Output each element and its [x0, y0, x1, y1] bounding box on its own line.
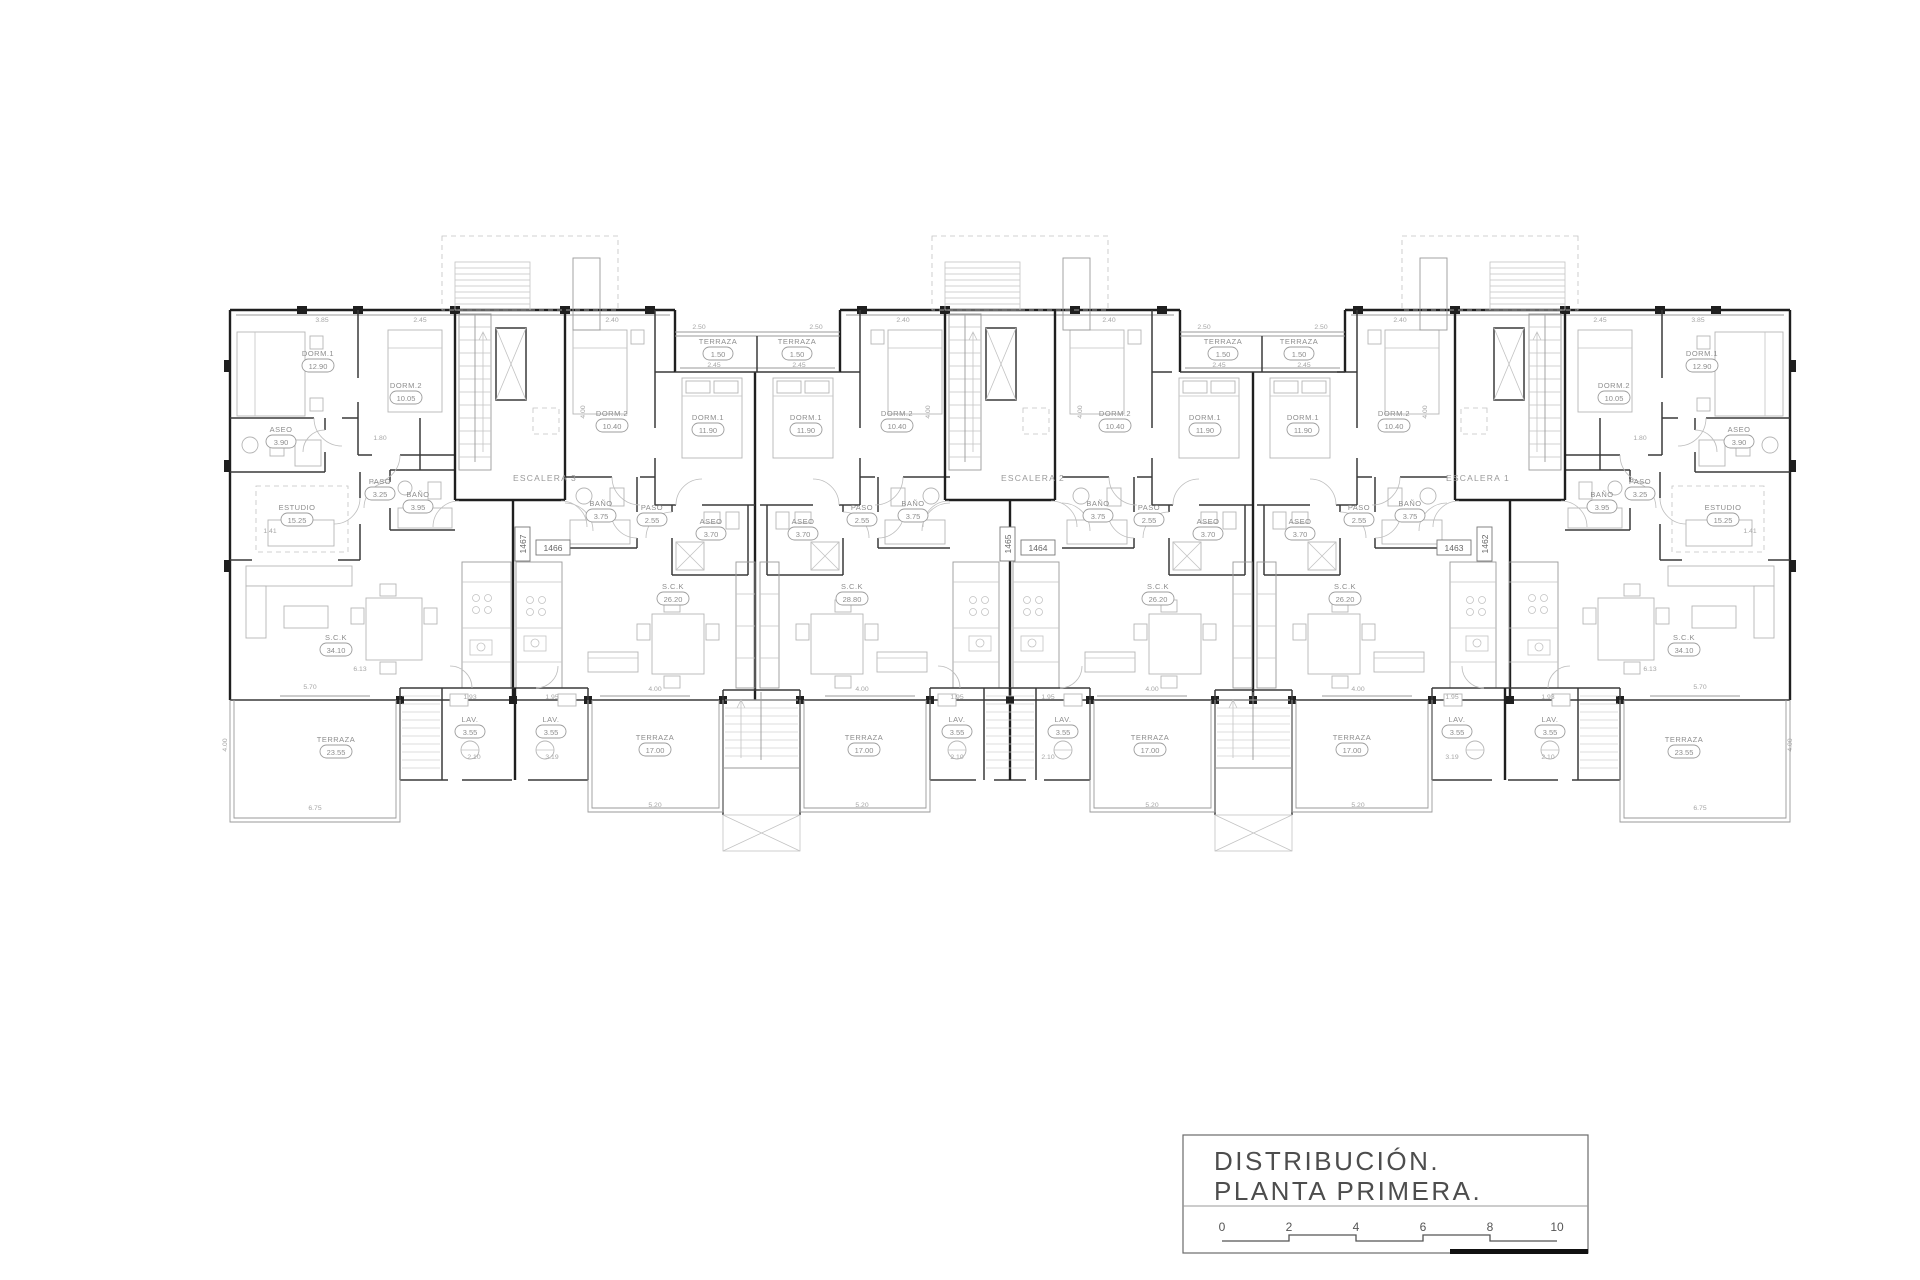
unit-tag-1465: 1465	[1000, 527, 1015, 561]
room-label-apt5-terraza: TERRAZA17.00	[1333, 733, 1372, 756]
room-label-apt5-sck: S.C.K26.20	[1329, 582, 1361, 605]
room-name-label: ASEO	[792, 517, 815, 526]
unit-tags: 1466 1464 1463 1467 1465 1462	[515, 527, 1492, 561]
room-label-apt3-dorm2: DORM.210.40	[881, 409, 913, 432]
dimension-text: 1.80	[1633, 435, 1646, 442]
room-area-value: 2.55	[1142, 516, 1157, 525]
room-name-label: BAÑO	[589, 499, 612, 508]
unit-tag-text: 1464	[1029, 543, 1048, 553]
room-name-label: DORM.1	[1287, 413, 1319, 422]
room-area-value: 3.70	[1293, 530, 1308, 539]
room-area-value: 28.80	[843, 595, 862, 604]
room-area-value: 2.55	[855, 516, 870, 525]
dimension-text: 1.93	[1541, 694, 1554, 701]
room-name-label: DORM.2	[1099, 409, 1131, 418]
room-label-apt5-paso: PASO2.55	[1344, 503, 1374, 526]
dimension-text: 6.75	[1693, 805, 1706, 812]
room-name-label: DORM.1	[790, 413, 822, 422]
dimension-text: 3.19	[1445, 754, 1458, 761]
room-name-label: LAV.	[1541, 715, 1558, 724]
dimension-text: 2.10	[467, 754, 480, 761]
room-area-value: 26.20	[1336, 595, 1355, 604]
room-label-apt6-dorm1: DORM.112.90	[1686, 349, 1718, 372]
room-label-apt2-dorm1: DORM.111.90	[692, 413, 724, 436]
room-area-value: 1.50	[1216, 350, 1231, 359]
dimension-text: 2.40	[896, 317, 909, 324]
room-label-apt2-lav: LAV.3.55	[536, 715, 566, 738]
scale-bar: 0 2 4 6 8 10	[1219, 1220, 1564, 1241]
room-label-apt5-terraza-sup: TERRAZA1.50	[1280, 337, 1319, 360]
unit-tag-1462: 1462	[1477, 527, 1492, 561]
room-label-apt1-bano: BAÑO3.95	[403, 490, 433, 513]
dimension-text: 2.45	[413, 317, 426, 324]
stair-label-escalera-1: ESCALERA 1	[1446, 473, 1510, 483]
room-area-value: 3.95	[411, 503, 426, 512]
dimension-text: 1.41	[263, 528, 276, 535]
dimension-text: 6.13	[1643, 666, 1656, 673]
apartment-1	[230, 310, 511, 696]
room-area-value: 15.25	[1714, 516, 1733, 525]
dimension-text: 2.50	[1314, 324, 1327, 331]
dimension-text: 6.13	[353, 666, 366, 673]
room-name-label: LAV.	[948, 715, 965, 724]
room-label-apt4-dorm2: DORM.210.40	[1099, 409, 1131, 432]
room-area-value: 3.75	[1091, 512, 1106, 521]
room-area-value: 10.40	[603, 422, 622, 431]
dimension-text: 1.80	[373, 435, 386, 442]
dimension-text: 2.40	[605, 317, 618, 324]
room-label-apt2-bano: BAÑO3.75	[586, 499, 616, 522]
room-name-label: BAÑO	[1086, 499, 1109, 508]
room-label-apt1-dorm1: DORM.112.90	[302, 349, 334, 372]
room-area-value: 10.40	[1385, 422, 1404, 431]
room-label-apt5-dorm1: DORM.111.90	[1287, 413, 1319, 436]
dimension-text: 2.10	[1041, 754, 1054, 761]
unit-tag-1464: 1464	[1021, 540, 1055, 555]
dimension-text: 2.45	[1593, 317, 1606, 324]
room-area-value: 23.55	[1675, 748, 1694, 757]
room-label-apt6-lav: LAV.3.55	[1535, 715, 1565, 738]
stair-label-escalera-2: ESCALERA 2	[1001, 473, 1065, 483]
room-area-value: 10.40	[888, 422, 907, 431]
dimension-text: 4.00	[925, 405, 932, 418]
room-label-apt5-dorm2: DORM.210.40	[1378, 409, 1410, 432]
dimension-text: 6.75	[308, 805, 321, 812]
title-block-accent-bar	[1450, 1249, 1588, 1254]
dimension-text: 4.00	[1351, 686, 1364, 693]
room-label-apt3-dorm1: DORM.111.90	[790, 413, 822, 436]
room-area-value: 11.90	[699, 426, 717, 435]
unit-tag-text: 1463	[1445, 543, 1464, 553]
dimension-text: 2.10	[1541, 754, 1554, 761]
room-area-value: 3.55	[1450, 728, 1465, 737]
unit-tag-text: 1467	[518, 534, 528, 553]
room-area-value: 17.00	[646, 746, 665, 755]
room-label-apt4-sck: S.C.K26.20	[1142, 582, 1174, 605]
room-name-label: ASEO	[700, 517, 723, 526]
room-label-apt6-paso: PASO3.25	[1625, 477, 1655, 500]
room-name-label: TERRAZA	[1131, 733, 1170, 742]
room-label-apt5-lav: LAV.3.55	[1442, 715, 1472, 738]
room-name-label: ASEO	[1728, 425, 1751, 434]
room-label-apt4-bano: BAÑO3.75	[1083, 499, 1113, 522]
room-area-value: 26.20	[664, 595, 683, 604]
room-name-label: DORM.2	[881, 409, 913, 418]
room-area-value: 3.25	[1633, 490, 1648, 499]
dimension-text: 2.45	[792, 362, 805, 369]
room-area-value: 15.25	[288, 516, 307, 525]
dimension-text: 2.45	[707, 362, 720, 369]
room-area-value: 3.75	[594, 512, 609, 521]
room-name-label: BAÑO	[901, 499, 924, 508]
dimension-text: 5.20	[855, 802, 868, 809]
room-label-apt1-estudio: ESTUDIO15.25	[279, 503, 316, 526]
dimension-text: 3.85	[315, 317, 328, 324]
room-name-label: TERRAZA	[699, 337, 738, 346]
room-label-apt3-lav: LAV.3.55	[942, 715, 972, 738]
room-name-label: LAV.	[461, 715, 478, 724]
unit-tag-1463: 1463	[1437, 540, 1471, 555]
room-label-apt3-aseo: ASEO3.70	[788, 517, 818, 540]
room-label-apt6-estudio: ESTUDIO15.25	[1705, 503, 1742, 526]
room-area-value: 3.90	[1732, 438, 1747, 447]
room-label-apt6-dorm2: DORM.210.05	[1598, 381, 1630, 404]
room-area-value: 3.55	[1056, 728, 1071, 737]
room-label-apt1-sck: S.C.K34.10	[320, 633, 352, 656]
room-label-apt1-paso: PASO3.25	[365, 477, 395, 500]
room-area-value: 3.25	[373, 490, 388, 499]
room-label-apt1-dorm2: DORM.210.05	[390, 381, 422, 404]
room-area-value: 11.90	[1294, 426, 1312, 435]
dimension-text: 4.00	[648, 686, 661, 693]
room-name-label: S.C.K	[1673, 633, 1695, 642]
room-name-label: PASO	[1629, 477, 1651, 486]
room-area-value: 12.90	[309, 362, 328, 371]
room-name-label: TERRAZA	[845, 733, 884, 742]
room-area-value: 10.40	[1106, 422, 1125, 431]
dimension-text: 2.40	[1393, 317, 1406, 324]
dimension-text: 2.50	[692, 324, 705, 331]
dimension-text: 2.10	[950, 754, 963, 761]
scale-tick-label: 4	[1353, 1220, 1360, 1234]
dimension-text: 2.45	[1297, 362, 1310, 369]
laundry-module-left	[400, 666, 588, 780]
room-name-label: TERRAZA	[1204, 337, 1243, 346]
stair-labels: ESCALERA 3 ESCALERA 2 ESCALERA 1	[513, 473, 1510, 483]
room-name-label: DORM.1	[692, 413, 724, 422]
room-name-label: PASO	[1348, 503, 1370, 512]
room-label-apt5-aseo: ASEO3.70	[1285, 517, 1315, 540]
dimension-text: 5.70	[303, 684, 316, 691]
room-area-value: 17.00	[855, 746, 874, 755]
room-name-label: PASO	[641, 503, 663, 512]
room-area-value: 3.55	[1543, 728, 1558, 737]
dimension-text: 2.50	[1197, 324, 1210, 331]
room-label-apt4-aseo: ASEO3.70	[1193, 517, 1223, 540]
dimension-text: 5.20	[1351, 802, 1364, 809]
dimension-text: 1.95	[950, 694, 963, 701]
room-name-label: S.C.K	[1334, 582, 1356, 591]
room-area-value: 10.05	[397, 394, 416, 403]
dimension-text: 5.20	[648, 802, 661, 809]
scale-tick-label: 8	[1487, 1220, 1494, 1234]
room-area-value: 1.50	[711, 350, 726, 359]
drawing-title-line1: DISTRIBUCIÓN.	[1214, 1146, 1440, 1176]
room-label-apt3-sck: S.C.K28.80	[836, 582, 868, 605]
dimension-text: 2.45	[1212, 362, 1225, 369]
room-name-label: TERRAZA	[1280, 337, 1319, 346]
dimension-text: 4.00	[1145, 686, 1158, 693]
room-label-apt4-terraza-sup: TERRAZA1.50	[1204, 337, 1243, 360]
room-area-value: 3.55	[950, 728, 965, 737]
room-name-label: DORM.2	[596, 409, 628, 418]
room-label-apt6-sck: S.C.K34.10	[1668, 633, 1700, 656]
room-label-apt4-terraza: TERRAZA17.00	[1131, 733, 1170, 756]
room-area-value: 2.55	[645, 516, 660, 525]
room-name-label: ESTUDIO	[279, 503, 316, 512]
dimension-text: 5.70	[1693, 684, 1706, 691]
room-area-value: 12.90	[1693, 362, 1712, 371]
dimension-text: 1.93	[463, 694, 476, 701]
room-name-label: TERRAZA	[1665, 735, 1704, 744]
room-name-label: TERRAZA	[636, 733, 675, 742]
dimension-text: 2.40	[1102, 317, 1115, 324]
room-name-label: S.C.K	[325, 633, 347, 642]
room-label-apt2-paso: PASO2.55	[637, 503, 667, 526]
scale-tick-label: 10	[1550, 1220, 1564, 1234]
room-area-value: 3.75	[906, 512, 921, 521]
room-label-apt6-bano: BAÑO3.95	[1587, 490, 1617, 513]
room-label-apt4-paso: PASO2.55	[1134, 503, 1164, 526]
room-area-value: 1.50	[790, 350, 805, 359]
room-name-label: DORM.2	[1598, 381, 1630, 390]
room-area-value: 23.55	[327, 748, 346, 757]
room-label-apt5-bano: BAÑO3.75	[1395, 499, 1425, 522]
scale-tick-label: 0	[1219, 1220, 1226, 1234]
scale-bar-line	[1222, 1235, 1557, 1241]
room-name-label: S.C.K	[1147, 582, 1169, 591]
room-area-value: 2.55	[1352, 516, 1367, 525]
room-label-apt2-sck: S.C.K26.20	[657, 582, 689, 605]
room-name-label: PASO	[851, 503, 873, 512]
room-area-value: 11.90	[797, 426, 815, 435]
room-area-value: 3.70	[704, 530, 719, 539]
dimension-text: 5.20	[1145, 802, 1158, 809]
dimension-text: 1.41	[1743, 528, 1756, 535]
room-area-value: 17.00	[1141, 746, 1160, 755]
architectural-sheet: DORM.112.90 DORM.210.05 ASEO3.90 PASO3.2…	[0, 0, 1920, 1280]
title-block: DISTRIBUCIÓN. PLANTA PRIMERA. 0 2 4 6 8 …	[1183, 1135, 1588, 1254]
dimension-text: 4.00	[1787, 738, 1794, 751]
room-name-label: ASEO	[270, 425, 293, 434]
room-name-label: DORM.2	[390, 381, 422, 390]
room-name-label: LAV.	[1448, 715, 1465, 724]
room-area-value: 1.50	[1292, 350, 1307, 359]
room-name-label: DORM.1	[1686, 349, 1718, 358]
room-label-apt2-dorm2: DORM.210.40	[596, 409, 628, 432]
room-label-apt3-terraza: TERRAZA17.00	[845, 733, 884, 756]
floor-plan-drawing: DORM.112.90 DORM.210.05 ASEO3.90 PASO3.2…	[0, 0, 1920, 1280]
room-area-value: 3.70	[1201, 530, 1216, 539]
room-label-apt1-terraza: TERRAZA23.55	[317, 735, 356, 758]
external-stair-right	[1215, 690, 1292, 851]
room-area-value: 3.70	[796, 530, 811, 539]
room-area-value: 3.55	[463, 728, 478, 737]
unit-tag-1467: 1467	[515, 527, 530, 561]
room-label-apt3-bano: BAÑO3.75	[898, 499, 928, 522]
unit-tag-text: 1462	[1480, 534, 1490, 553]
room-area-value: 34.10	[327, 646, 346, 655]
room-area-value: 3.90	[274, 438, 289, 447]
stair-label-escalera-3: ESCALERA 3	[513, 473, 577, 483]
room-name-label: BAÑO	[1398, 499, 1421, 508]
room-name-label: PASO	[369, 477, 391, 486]
room-label-apt1-lav: LAV.3.55	[455, 715, 485, 738]
room-area-value: 26.20	[1149, 595, 1168, 604]
room-area-value: 17.00	[1343, 746, 1362, 755]
room-label-apt1-aseo: ASEO3.90	[266, 425, 296, 448]
room-label-apt2-aseo: ASEO3.70	[696, 517, 726, 540]
external-stair-left	[723, 690, 800, 851]
unit-tag-text: 1466	[544, 543, 563, 553]
dimension-text: 4.00	[1422, 405, 1429, 418]
unit-tag-text: 1465	[1003, 534, 1013, 553]
apartment-6	[1509, 310, 1790, 696]
dimension-text: 4.00	[222, 738, 229, 751]
room-name-label: TERRAZA	[317, 735, 356, 744]
room-name-label: ASEO	[1197, 517, 1220, 526]
room-name-label: BAÑO	[406, 490, 429, 499]
room-name-label: DORM.2	[1378, 409, 1410, 418]
room-label-apt2-terraza: TERRAZA17.00	[636, 733, 675, 756]
drawing-title-line2: PLANTA PRIMERA.	[1214, 1176, 1482, 1206]
dimension-text: 4.00	[1077, 405, 1084, 418]
room-name-label: S.C.K	[841, 582, 863, 591]
room-name-label: ASEO	[1289, 517, 1312, 526]
room-label-apt3-paso: PASO2.55	[847, 503, 877, 526]
room-area-value: 34.10	[1675, 646, 1694, 655]
room-name-label: LAV.	[1054, 715, 1071, 724]
room-name-label: PASO	[1138, 503, 1160, 512]
dimension-text: 3.85	[1691, 317, 1704, 324]
room-area-value: 11.90	[1196, 426, 1214, 435]
dimension-text: 1.95	[1445, 694, 1458, 701]
scale-tick-label: 6	[1420, 1220, 1427, 1234]
dimension-text: 4.00	[580, 405, 587, 418]
room-name-label: TERRAZA	[1333, 733, 1372, 742]
room-name-label: DORM.1	[302, 349, 334, 358]
room-label-apt6-aseo: ASEO3.90	[1724, 425, 1754, 448]
room-area-value: 3.75	[1403, 512, 1418, 521]
unit-tag-1466: 1466	[536, 540, 570, 555]
room-label-apt6-terraza: TERRAZA23.55	[1665, 735, 1704, 758]
room-label-apt4-lav: LAV.3.55	[1048, 715, 1078, 738]
room-area-value: 3.95	[1595, 503, 1610, 512]
room-name-label: BAÑO	[1590, 490, 1613, 499]
room-name-label: ESTUDIO	[1705, 503, 1742, 512]
dimension-text: 1.95	[1041, 694, 1054, 701]
dimension-text: 1.95	[545, 694, 558, 701]
scale-tick-label: 2	[1286, 1220, 1293, 1234]
dimension-text: 4.00	[855, 686, 868, 693]
room-name-label: DORM.1	[1189, 413, 1221, 422]
room-name-label: TERRAZA	[778, 337, 817, 346]
room-label-apt4-dorm1: DORM.111.90	[1189, 413, 1221, 436]
room-label-apt2-terraza-sup: TERRAZA1.50	[699, 337, 738, 360]
room-area-value: 3.55	[544, 728, 559, 737]
dimension-text: 2.50	[809, 324, 822, 331]
room-label-apt3-terraza-sup: TERRAZA1.50	[778, 337, 817, 360]
dimension-text: 3.19	[545, 754, 558, 761]
room-area-value: 10.05	[1605, 394, 1624, 403]
room-name-label: LAV.	[542, 715, 559, 724]
room-name-label: S.C.K	[662, 582, 684, 591]
